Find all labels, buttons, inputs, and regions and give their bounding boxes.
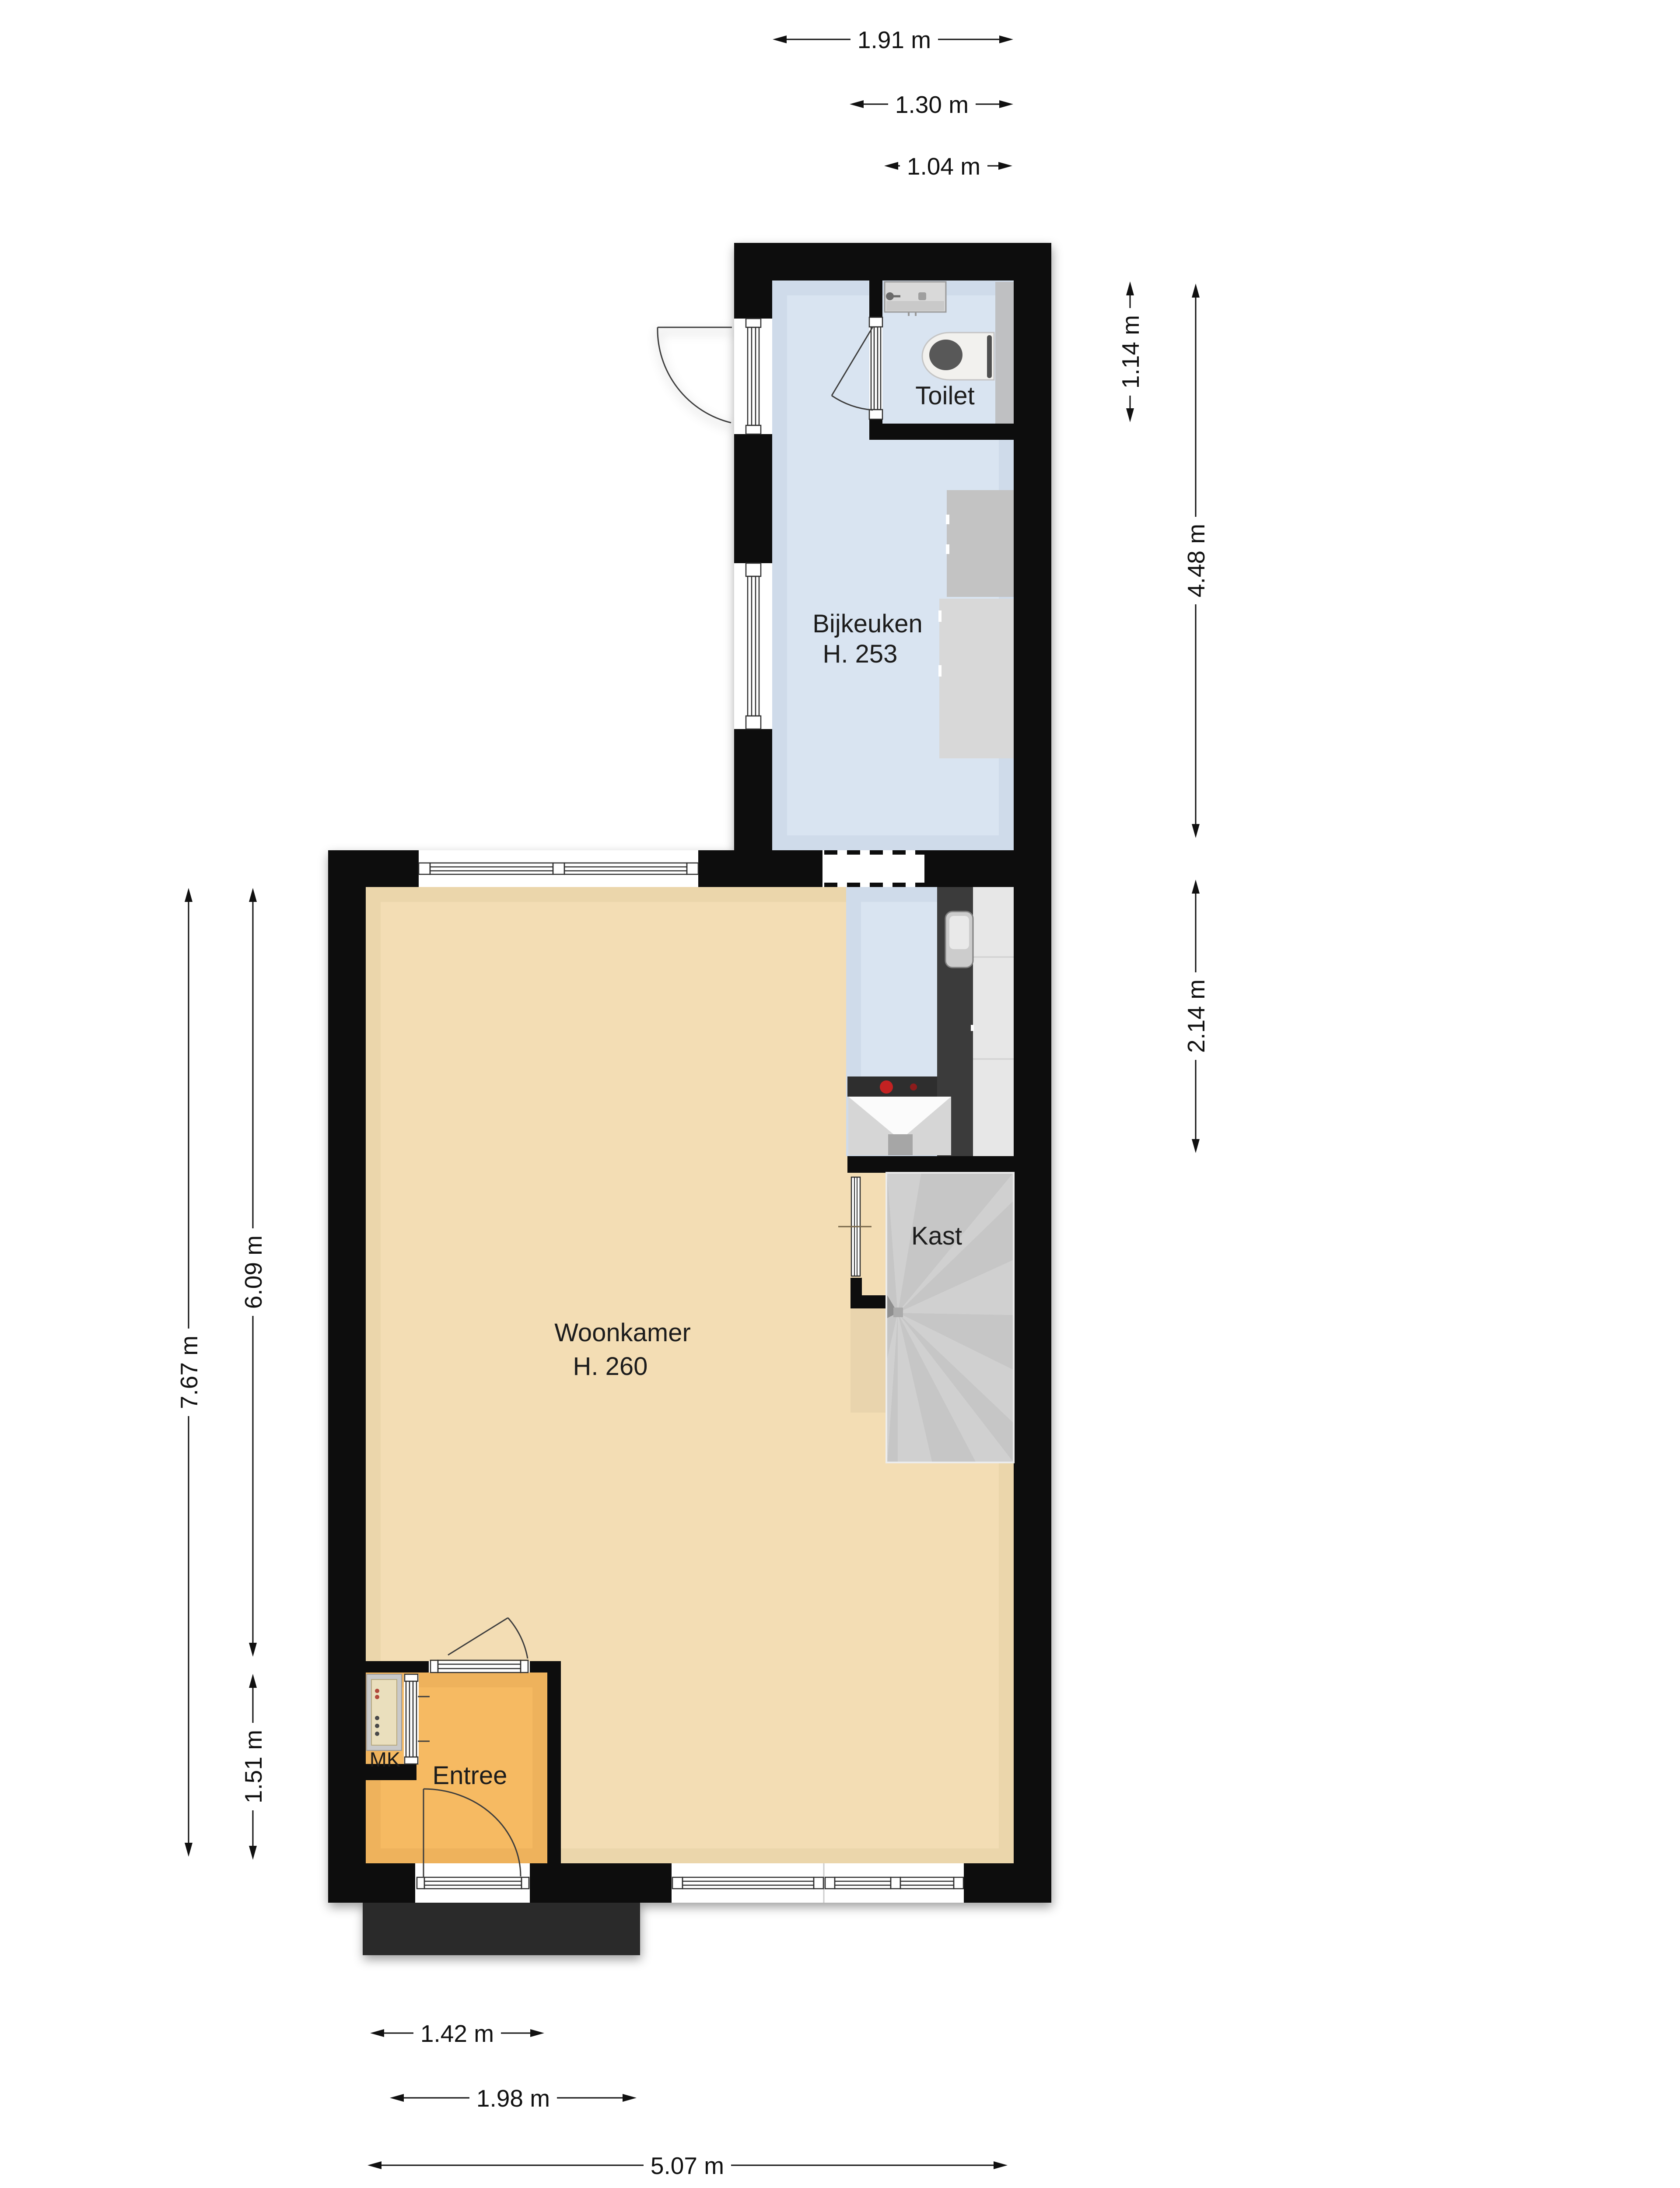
svg-text:Bijkeuken: Bijkeuken	[812, 610, 922, 638]
svg-text:2.14 m: 2.14 m	[1183, 979, 1210, 1053]
svg-text:Toilet: Toilet	[915, 382, 974, 410]
svg-text:Entree: Entree	[433, 1761, 507, 1790]
svg-text:H. 260: H. 260	[573, 1352, 648, 1381]
svg-text:5.07 m: 5.07 m	[651, 2152, 724, 2179]
svg-text:1.51 m: 1.51 m	[240, 1730, 267, 1803]
svg-text:1.04 m: 1.04 m	[907, 153, 980, 180]
svg-text:6.09 m: 6.09 m	[240, 1235, 267, 1309]
svg-text:4.48 m: 4.48 m	[1183, 524, 1210, 597]
svg-text:Kast: Kast	[911, 1222, 962, 1250]
svg-text:MK: MK	[370, 1748, 401, 1771]
svg-text:H. 253: H. 253	[823, 640, 898, 668]
svg-text:1.98 m: 1.98 m	[476, 2085, 550, 2112]
svg-text:1.14 m: 1.14 m	[1117, 315, 1144, 389]
svg-text:1.42 m: 1.42 m	[420, 2020, 494, 2047]
svg-text:1.91 m: 1.91 m	[857, 26, 931, 53]
svg-text:7.67 m: 7.67 m	[175, 1336, 203, 1409]
svg-text:1.30 m: 1.30 m	[895, 91, 969, 118]
svg-text:Woonkamer: Woonkamer	[554, 1318, 691, 1347]
